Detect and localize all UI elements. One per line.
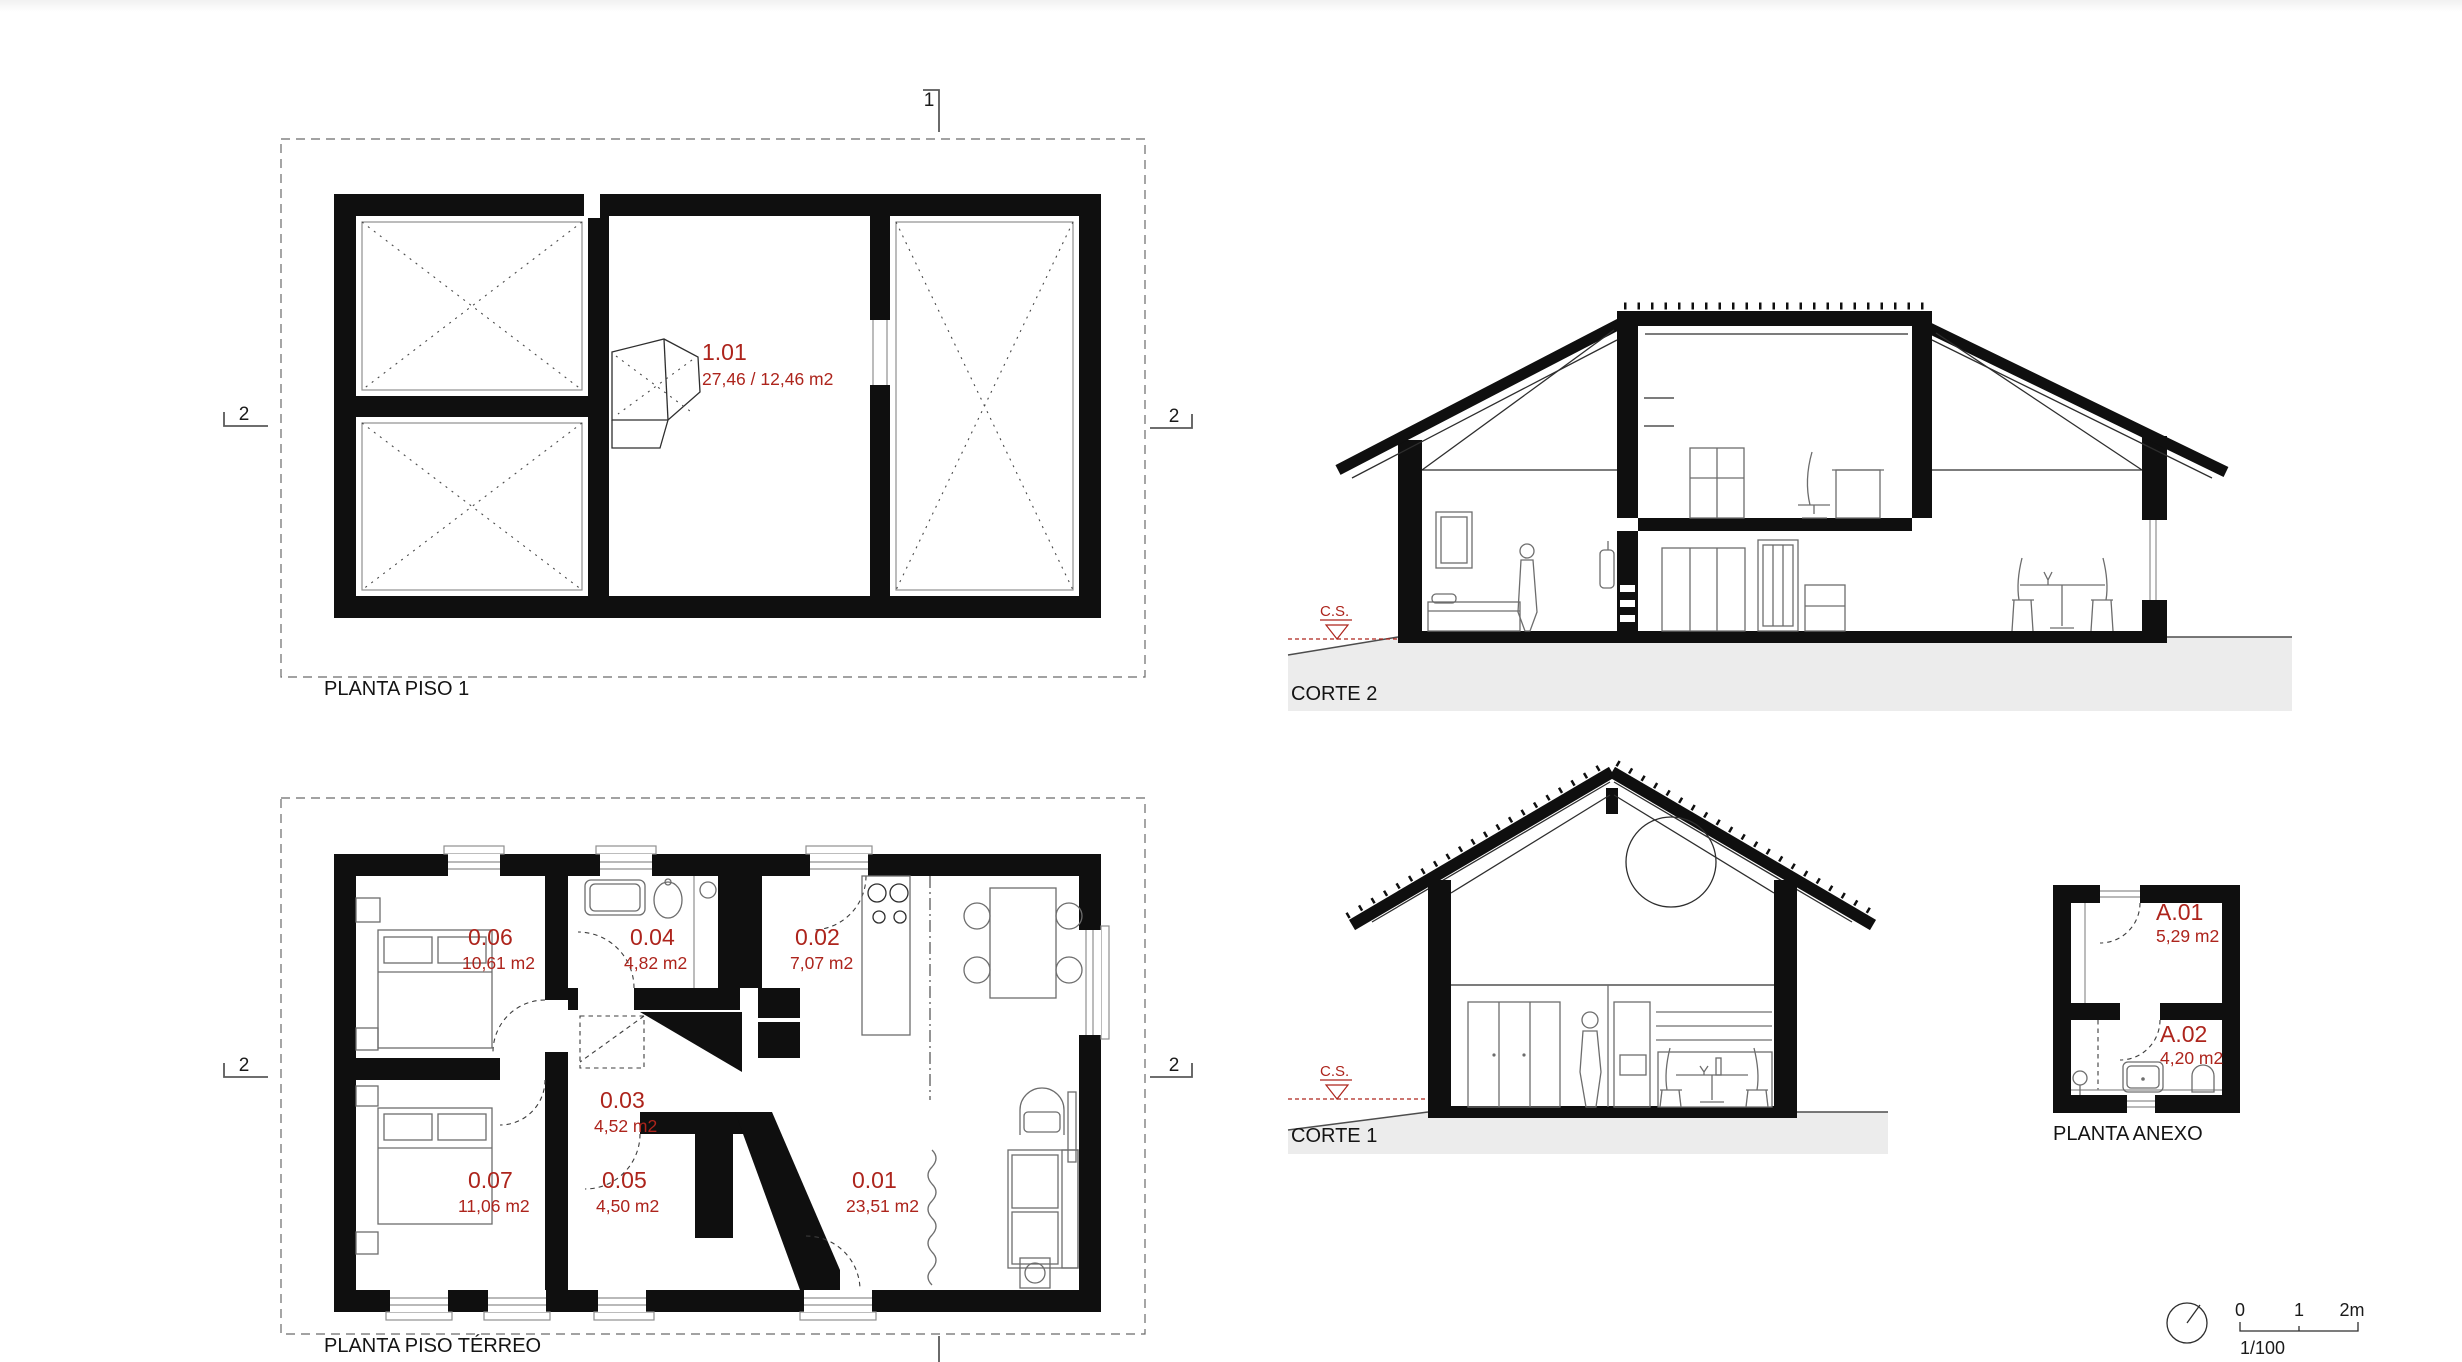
piso1-door-opening	[870, 316, 890, 389]
anexo-walls	[2053, 885, 2240, 1113]
planta-anexo-drawing: A.01 5,29 m2 A.02 4,20 m2 PLANTA ANEXO	[2053, 885, 2240, 1145]
room-area: 5,29 m2	[2156, 926, 2219, 946]
ground-fill	[1288, 637, 2292, 711]
room-area: 4,82 m2	[624, 953, 687, 973]
room-id: 0.02	[795, 924, 840, 950]
scale-tick-0: 0	[2235, 1300, 2245, 1320]
room-area: 4,50 m2	[596, 1196, 659, 1216]
room-id: 0.05	[602, 1167, 647, 1193]
cs-label: C.S.	[1320, 1063, 1349, 1080]
room-area: 10,61 m2	[462, 953, 535, 973]
planta-piso-terreo-drawing: 2 2	[224, 798, 1192, 1362]
corte1-furniture	[1468, 985, 1772, 1107]
mezzanine-furniture	[1644, 398, 1884, 518]
scale-tick-1: 1	[2294, 1300, 2304, 1320]
terreo-walls	[334, 854, 1101, 1312]
level-marker-cs-corte1: C.S.	[1288, 1063, 1428, 1099]
room-area: 4,52 m2	[594, 1116, 657, 1136]
section-cut-marker-1-top: 1	[923, 90, 939, 132]
person-figure	[1580, 1012, 1601, 1107]
corte-2-drawing: C.S. CORTE 2	[1288, 306, 2292, 711]
room-id: 1.01	[702, 339, 747, 365]
room-id: 0.06	[468, 924, 513, 950]
section-cut-marker-2-left-terreo: 2	[224, 1055, 268, 1077]
scale-bar: 0 1 2m 1/100	[2167, 1300, 2365, 1358]
scale-tick-2m: 2m	[2339, 1300, 2364, 1320]
room-id: 0.03	[600, 1087, 645, 1113]
cut-number: 2	[239, 404, 250, 425]
room-area: 23,51 m2	[846, 1196, 919, 1216]
section-title-corte1: CORTE 1	[1291, 1125, 1377, 1147]
room-area: 7,07 m2	[790, 953, 853, 973]
cut-number: 2	[1169, 1055, 1180, 1076]
cut-number: 1	[924, 90, 935, 111]
room-id: 0.01	[852, 1167, 897, 1193]
cs-label: C.S.	[1320, 603, 1349, 620]
level-marker-cs-corte2: C.S.	[1288, 603, 1398, 639]
piso1-walls	[334, 192, 1101, 618]
room-id: A.01	[2156, 899, 2203, 925]
corte2-structure	[1338, 306, 2226, 643]
glazed-door	[1758, 540, 1798, 631]
person-figure	[1518, 544, 1537, 631]
room-id: A.02	[2160, 1021, 2207, 1047]
scale-ratio: 1/100	[2240, 1338, 2285, 1358]
wall-slot	[584, 192, 600, 218]
terreo-window-right	[1079, 926, 1109, 1039]
hanging-clothes	[1600, 541, 1614, 588]
section-cut-marker-2-right-terreo: 2	[1150, 1055, 1192, 1077]
architectural-sheet: 1 2 2	[0, 0, 2462, 1362]
corte1-structure	[1347, 763, 1878, 1118]
room-area: 11,06 m2	[458, 1196, 530, 1216]
section-title-corte2: CORTE 2	[1291, 683, 1377, 705]
room-area: 4,20 m2	[2160, 1048, 2223, 1068]
section-cut-marker-2-left: 2	[224, 404, 268, 426]
cut-number: 2	[239, 1055, 250, 1076]
cut-number: 2	[1169, 406, 1180, 427]
plan-title-piso1: PLANTA PISO 1	[324, 678, 469, 700]
plan-title-terreo: PLANTA PISO TÉRREO	[324, 1334, 541, 1357]
planta-piso-1-drawing: 1 2 2	[224, 90, 1192, 700]
room-id: 0.07	[468, 1167, 513, 1193]
corte-1-drawing: C.S. CORTE 1	[1288, 763, 1888, 1154]
north-arrow-icon	[2167, 1303, 2207, 1343]
room-id: 0.04	[630, 924, 675, 950]
section-cut-marker-2-right: 2	[1150, 406, 1192, 428]
plan-title-anexo: PLANTA ANEXO	[2053, 1123, 2203, 1145]
room-area: 27,46 / 12,46 m2	[702, 369, 833, 389]
dining-set-section	[2012, 558, 2113, 631]
